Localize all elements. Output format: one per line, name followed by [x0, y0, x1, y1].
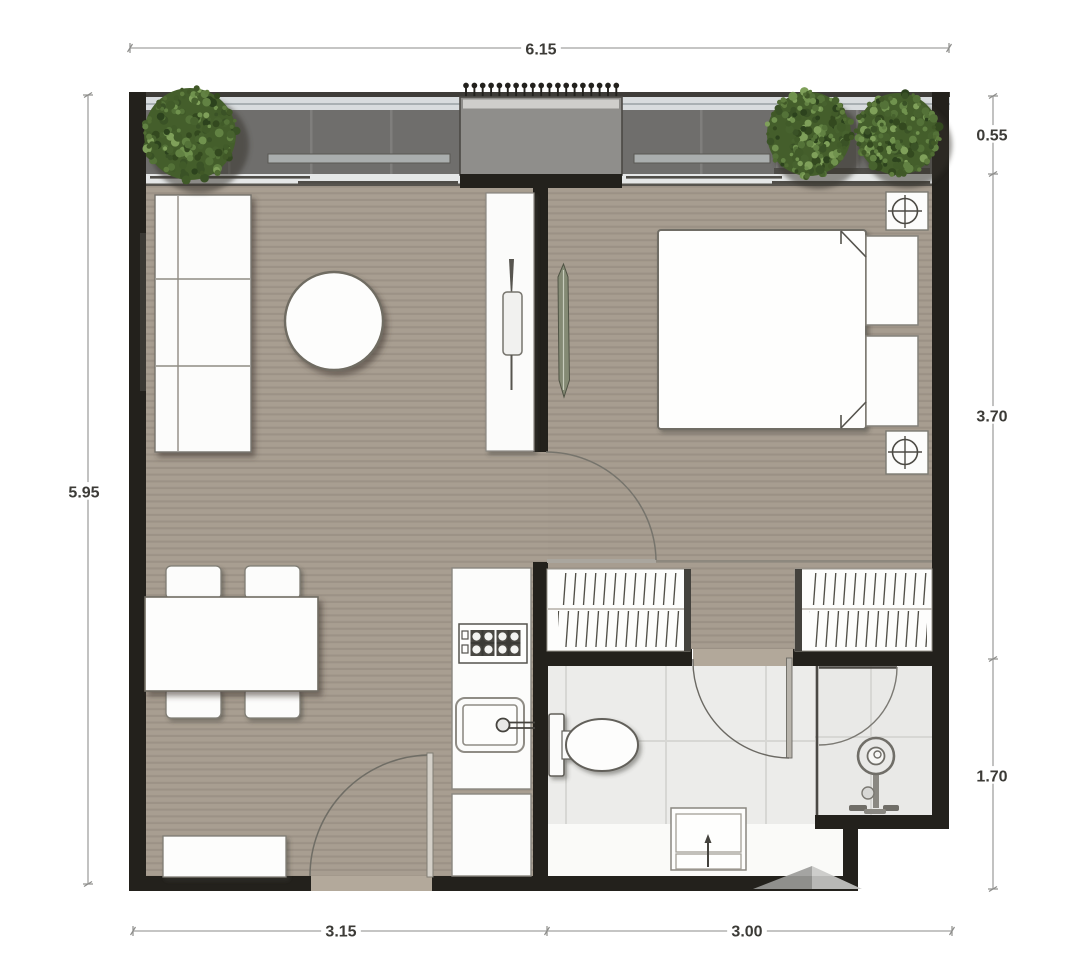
svg-text:3.15: 3.15	[325, 923, 356, 940]
svg-text:6.15: 6.15	[525, 41, 556, 58]
svg-text:1.70: 1.70	[976, 768, 1007, 785]
svg-text:3.70: 3.70	[976, 408, 1007, 425]
svg-text:3.00: 3.00	[731, 923, 762, 940]
svg-text:0.55: 0.55	[976, 127, 1007, 144]
svg-text:5.95: 5.95	[68, 484, 99, 501]
